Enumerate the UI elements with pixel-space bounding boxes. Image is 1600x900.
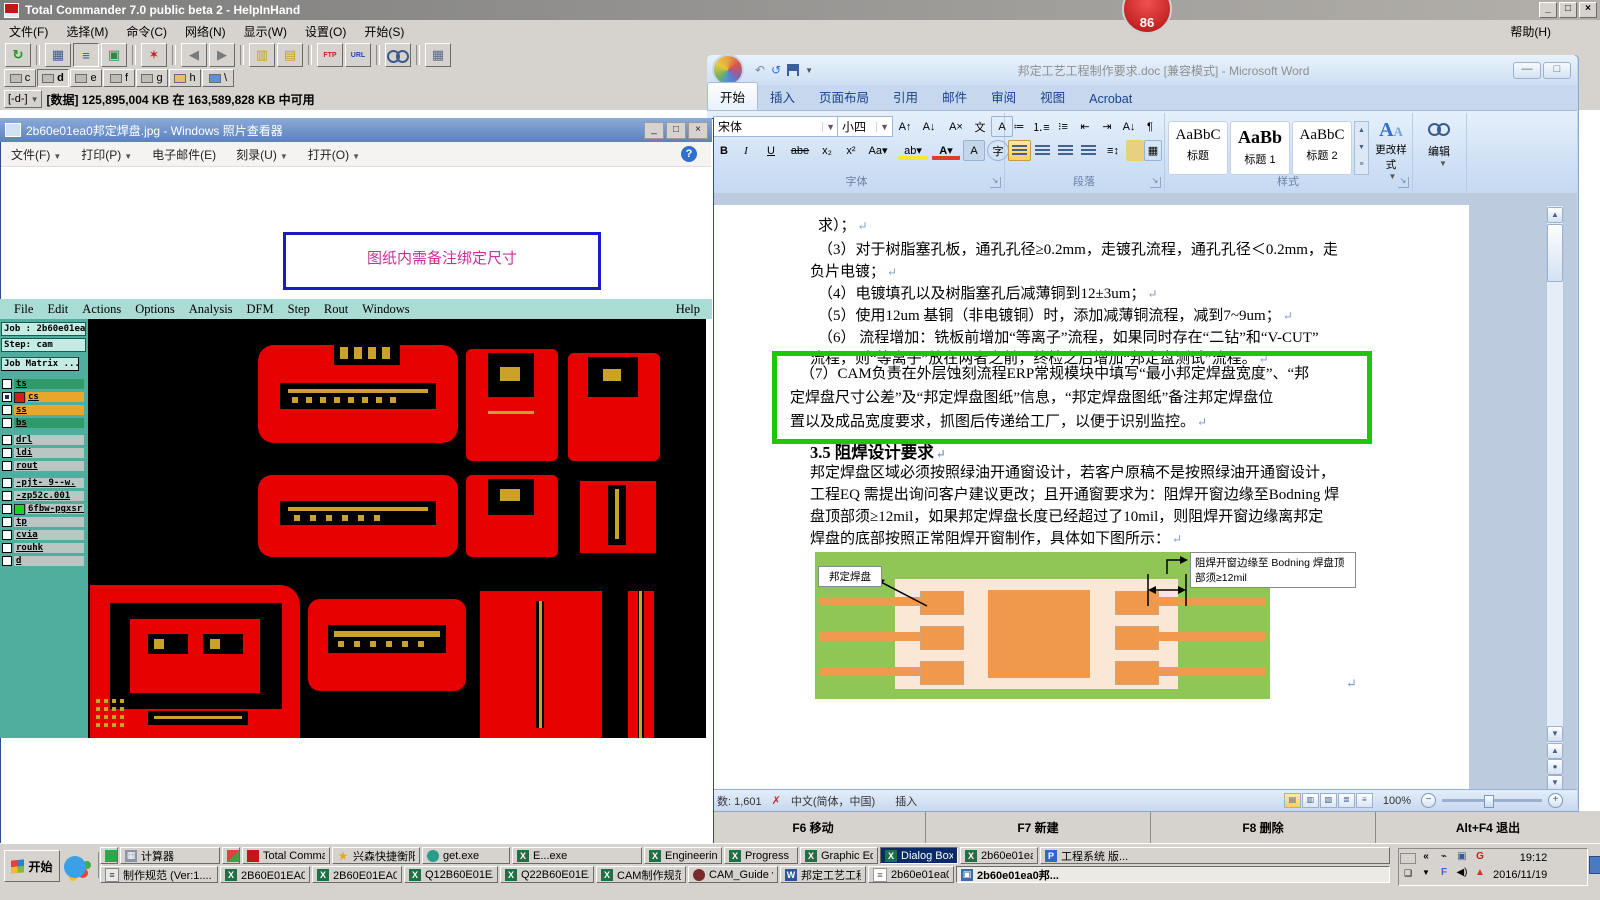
layer-row: tp <box>2 516 84 528</box>
tab-view[interactable]: 视图 <box>1028 83 1077 110</box>
photo-viewer-menubar: 文件(F)▼ 打印(P)▼ 电子邮件(E) 刻录(U)▼ 打开(O)▼ ? <box>1 142 711 167</box>
refresh-icon[interactable]: ↻ <box>5 43 31 67</box>
tab-review[interactable]: 审阅 <box>979 83 1028 110</box>
grow-font-button[interactable]: A↑ <box>893 116 917 137</box>
dropdown-arrow-icon[interactable]: ▼ <box>876 122 892 132</box>
tab-references[interactable]: 引用 <box>881 83 930 110</box>
scroll-up-button[interactable]: ▲ <box>1547 207 1563 223</box>
excel-icon: X <box>517 850 529 862</box>
borders-button[interactable]: ▦ <box>1144 140 1162 161</box>
calculator-icon[interactable]: ▦ <box>425 43 451 67</box>
layer-checkbox[interactable] <box>2 556 12 566</box>
word-maximize-button[interactable]: □ <box>1543 62 1571 79</box>
tab-page-layout[interactable]: 页面布局 <box>807 83 881 110</box>
superscript-button[interactable]: x² <box>839 140 863 161</box>
start-button[interactable]: 开始 <box>4 850 60 882</box>
paragraph-group-label: 段落 <box>1004 173 1164 189</box>
pv-menu-print[interactable]: 打印(P)▼ <box>71 143 142 166</box>
tc-close-button[interactable]: × <box>1579 2 1597 18</box>
multilevel-list-button[interactable]: ⁝≡ <box>1052 116 1074 137</box>
cam-step-label: Step: cam <box>1 338 86 352</box>
font-name-combo[interactable]: 宋体▼ <box>713 116 839 137</box>
cam-menu-help[interactable]: Help <box>676 302 700 317</box>
phonetic-guide-button[interactable]: 文 <box>969 116 991 137</box>
f8-delete-button[interactable]: F8 删除 <box>1150 811 1375 844</box>
word-title: 邦定工艺工程制作要求.doc [兼容模式] - Microsoft Word <box>816 62 1511 79</box>
excel-icon: X <box>225 869 237 881</box>
tc-minimize-button[interactable]: _ <box>1539 2 1557 18</box>
drive-icon <box>110 74 122 83</box>
pv-maximize-button[interactable]: □ <box>666 122 686 139</box>
pack-icon[interactable]: ▥ <box>249 43 275 67</box>
word-titlebar[interactable]: ↶ ↺ ▼ 邦定工艺工程制作要求.doc [兼容模式] - Microsoft … <box>707 55 1577 85</box>
qat-dropdown-icon[interactable]: ▼ <box>805 66 813 75</box>
excel-icon: X <box>805 850 817 862</box>
grid-view-icon[interactable]: ▦ <box>45 43 71 67</box>
editing-label[interactable]: 编辑 <box>1412 143 1466 159</box>
bullets-button[interactable]: ≔ <box>1008 116 1030 137</box>
drive-d-button[interactable]: d <box>37 69 69 87</box>
toolbar-separator <box>376 45 380 65</box>
doc-line: 邦定焊盘区域必须按照绿油开通窗设计，若客户原稿不是按照绿油开通窗设计， <box>810 461 1335 482</box>
align-right-icon <box>1058 145 1073 156</box>
total-commander-icon <box>247 850 259 862</box>
styles-gallery-scrollbar[interactable]: ▲▼≡ <box>1354 121 1369 175</box>
layer-name[interactable]: bs <box>14 418 84 428</box>
window-stack-icon[interactable]: ❑ <box>1400 866 1416 880</box>
excel-icon: X <box>317 869 329 881</box>
doc-line: 求）； <box>818 214 868 235</box>
excel-icon: X <box>505 869 517 881</box>
tray-date: 2016/11/19 <box>1493 867 1547 884</box>
layer-checkbox[interactable] <box>2 517 12 527</box>
pv-menu-open[interactable]: 打开(O)▼ <box>298 143 370 166</box>
browse-select-button[interactable]: ● <box>1547 759 1563 775</box>
style-name: 标题 1 <box>1231 151 1289 167</box>
photo-viewer-icon <box>5 123 21 137</box>
drive-icon <box>10 74 22 83</box>
drive-free-space: [数据] 125,895,004 KB 在 163,589,828 KB 中可用 <box>46 91 314 108</box>
italic-button[interactable]: I <box>735 140 757 161</box>
ftp-connect-icon[interactable]: FTP <box>317 43 343 67</box>
favorites-icon[interactable]: ✶ <box>141 43 167 67</box>
toolbar-separator <box>308 45 312 65</box>
layer-row: ss <box>2 404 84 416</box>
g-app-icon[interactable]: G <box>1472 850 1488 864</box>
doc-line: 盘顶部须≥12mil，如果邦定焊盘长度已经超过了10mil，则阻焊开窗边缘离邦定 <box>810 505 1323 526</box>
excel-icon: X <box>409 869 421 881</box>
fullscreen-view-button[interactable]: ▥ <box>1302 793 1319 808</box>
cam-guide-icon <box>693 869 705 881</box>
dropdown-arrow-icon: ▼ <box>280 152 288 161</box>
layer-name[interactable]: d <box>14 556 84 566</box>
shrink-font-button[interactable]: A↓ <box>917 116 941 137</box>
dropdown-arrow-icon[interactable]: ▼ <box>822 122 838 132</box>
taskbar-item[interactable]: CAM_Guide v2.63 <box>688 866 778 883</box>
layer-checkbox[interactable] <box>2 530 12 540</box>
tc-app-icon <box>4 3 19 18</box>
system-icon: P <box>1045 850 1057 862</box>
pv-menu-file[interactable]: 文件(F)▼ <box>1 143 71 166</box>
browse-prev-button[interactable]: ▲ <box>1547 743 1563 759</box>
outline-view-button[interactable]: ≣ <box>1338 793 1355 808</box>
excel-icon: X <box>601 869 613 881</box>
style-name: 标题 <box>1169 147 1227 163</box>
tab-acrobat[interactable]: Acrobat <box>1077 88 1144 110</box>
layer-name[interactable]: 6fbw-pgxsr. <box>26 504 84 514</box>
layer-name[interactable]: cvia <box>14 530 84 540</box>
taskbar-item[interactable]: XQ12B60E01EA0(... <box>404 866 498 883</box>
styles-group-label: 样式 <box>1164 173 1412 189</box>
zoom-slider-thumb[interactable] <box>1484 795 1494 808</box>
taskbar-item[interactable]: P工程系统 版... <box>1040 847 1390 864</box>
pv-help-button[interactable]: ? <box>681 146 697 162</box>
f6-move-button[interactable]: F6 移动 <box>700 811 925 844</box>
zoom-out-button[interactable]: − <box>1421 793 1436 808</box>
taskbar-item-active[interactable]: XDialog Box <box>880 847 958 864</box>
taskbar: 开始 ▦计算器 Total Commande... ★兴森快捷衡阳... get… <box>0 843 1600 900</box>
style-preview: AaBbC <box>1293 127 1351 144</box>
drive-icon <box>141 74 153 83</box>
cam-menu-step[interactable]: Step <box>288 302 310 317</box>
taskbar-icon-button[interactable] <box>222 847 240 864</box>
style-preview: AaBbC <box>1169 127 1227 144</box>
layer-row: d <box>2 555 84 567</box>
cam-menu-file[interactable]: File <box>14 302 33 317</box>
word-ribbon: 宋体▼ 小四▼ A↑ A↓ A× 文 A B I U abe x₂ x² Aa▾… <box>707 110 1577 195</box>
font-group-label: 字体 <box>709 173 1004 189</box>
thumbnails-icon[interactable]: ▣ <box>101 43 127 67</box>
drive-g-button[interactable]: g <box>136 69 168 87</box>
keyboard-icon[interactable] <box>1400 853 1416 864</box>
document-icon: ≡ <box>105 868 119 882</box>
layer-checkbox[interactable] <box>2 392 12 402</box>
pv-menu-burn[interactable]: 刻录(U)▼ <box>226 143 298 166</box>
volume-icon[interactable]: ◀) <box>1454 866 1470 880</box>
dropdown-arrow-icon: ▼ <box>352 152 360 161</box>
notepad-icon: ≡ <box>873 868 887 882</box>
toolbar-separator <box>36 45 40 65</box>
taskbar-item[interactable]: ★兴森快捷衡阳... <box>332 847 420 864</box>
shading-button[interactable] <box>1126 140 1144 161</box>
change-styles-label: 更改样式 <box>1371 142 1411 172</box>
callout-bond-pad: 邦定焊盘 <box>818 566 882 587</box>
photo-viewer-title: 2b60e01ea0邦定焊盘.jpg - Windows 照片查看器 <box>26 122 283 139</box>
cam-menu-dfm[interactable]: DFM <box>247 302 274 317</box>
taskbar-item[interactable]: X2B60E01EA0-预... <box>312 866 402 883</box>
layer-name[interactable]: tp <box>14 517 84 527</box>
tc-menu-settings[interactable]: 设置(O) <box>296 21 355 42</box>
redo-icon[interactable]: ↺ <box>771 63 781 77</box>
layer-checkbox[interactable] <box>2 379 12 389</box>
taskbar-item-active[interactable]: ▣2b60e01ea0邦... <box>956 866 1390 883</box>
font-color-button[interactable]: A▾ <box>931 140 961 161</box>
ribbon-group-font: 宋体▼ 小四▼ A↑ A↓ A× 文 A B I U abe x₂ x² Aa▾… <box>709 113 1005 191</box>
callout-mask-rule: 阻焊开窗边缘至 Bodning 焊盘顶 部须≥12mil <box>1190 552 1356 588</box>
taskbar-item[interactable]: X2B60E01EA0制作... <box>220 866 310 883</box>
windows-flag-icon <box>11 859 24 873</box>
doc-line: 负片电镀； <box>810 260 897 281</box>
justify-icon <box>1081 145 1096 156</box>
sort-button[interactable]: A↓ <box>1118 116 1140 137</box>
tc-titlebar[interactable]: Total Commander 7.0 public beta 2 - Help… <box>0 0 1600 20</box>
line-spacing-button[interactable]: ≡↕ <box>1100 140 1126 161</box>
numbering-button[interactable]: ⒈≡ <box>1030 116 1052 137</box>
font-dialog-launcher[interactable]: ↘ <box>990 177 1001 188</box>
drive-icon <box>174 74 186 83</box>
show-marks-button[interactable]: ¶ <box>1140 116 1160 137</box>
tc-restore-button[interactable]: □ <box>1559 2 1577 18</box>
cam-canvas[interactable] <box>88 319 706 738</box>
taskbar-item[interactable]: ≡2b60e01ea0.txt -... <box>868 866 954 883</box>
f7-new-button[interactable]: F7 新建 <box>925 811 1150 844</box>
taskbar-item[interactable]: XEngineering Tool... <box>644 847 722 864</box>
tc-menu-help[interactable]: 帮助(H) <box>1501 21 1560 42</box>
desktop: Total Commander 7.0 public beta 2 - Help… <box>0 0 1600 900</box>
draft-view-button[interactable]: ≡ <box>1356 793 1373 808</box>
layer-color-swatch[interactable] <box>14 504 25 515</box>
altf4-exit-button[interactable]: Alt+F4 退出 <box>1375 811 1600 844</box>
toolbar-separator <box>240 45 244 65</box>
word-icon: W <box>785 869 797 881</box>
taskbar-item[interactable]: X2b60e01ea0 - m... <box>960 847 1038 864</box>
undo-icon[interactable]: ↶ <box>755 63 765 77</box>
decrease-indent-button[interactable]: ⇤ <box>1074 116 1096 137</box>
taskbar-item[interactable]: get.exe <box>422 847 510 864</box>
cam-menu-actions[interactable]: Actions <box>82 302 121 317</box>
pv-close-button[interactable]: × <box>688 122 708 139</box>
flash-tool-icon[interactable]: F <box>1436 866 1452 880</box>
cam-menu-windows[interactable]: Windows <box>362 302 409 317</box>
find-icon[interactable] <box>1428 123 1450 133</box>
align-left-button[interactable] <box>1008 140 1031 161</box>
clock-icon <box>427 850 439 862</box>
word-ribbon-tabs: 开始 插入 页面布局 引用 邮件 审阅 视图 Acrobat <box>707 85 1577 110</box>
align-right-button[interactable] <box>1054 140 1077 161</box>
taskbar-item[interactable]: XQ22B60E01EA0(... <box>500 866 594 883</box>
green-highlight-box <box>772 351 1372 444</box>
callout-line2: 部须≥12mil <box>1195 570 1351 585</box>
font-size-combo[interactable]: 小四▼ <box>837 116 893 137</box>
show-desktop-icon[interactable] <box>1589 856 1600 874</box>
tc-menu-network[interactable]: 网络(N) <box>176 21 235 42</box>
pv-minimize-button[interactable]: _ <box>644 122 664 139</box>
bold-button[interactable]: B <box>713 140 735 161</box>
drive-h-button[interactable]: h <box>169 69 201 87</box>
style-preview: AaBb <box>1231 127 1289 148</box>
clear-formatting-button[interactable]: A× <box>943 116 969 137</box>
character-shading-button[interactable]: A <box>963 140 985 161</box>
doc-line: （5）使用12um 基铜（非电镀铜）时，添加减薄铜流程，减到7~9um； <box>818 304 1293 325</box>
align-center-icon <box>1035 145 1050 156</box>
tc-menu-start[interactable]: 开始(S) <box>355 21 413 42</box>
strikethrough-button[interactable]: abe <box>785 140 815 161</box>
star-icon: ★ <box>337 850 349 862</box>
drive-c-button[interactable]: c <box>4 69 36 87</box>
search-icon[interactable] <box>385 43 411 67</box>
styles-dialog-launcher[interactable]: ↘ <box>1398 177 1409 188</box>
style-card-heading2[interactable]: AaBbC 标题 2 <box>1292 121 1352 175</box>
zoom-level[interactable]: 100% <box>1383 795 1411 807</box>
excel-icon: X <box>729 850 741 862</box>
collapse-tray-icon[interactable]: ▼ <box>1418 866 1434 880</box>
language-status[interactable]: 中文(简体，中国) <box>791 793 875 809</box>
layer-name[interactable]: -pjt- 9--w. <box>14 478 84 488</box>
cam-menu-edit[interactable]: Edit <box>47 302 68 317</box>
cam-menubar: File Edit Actions Options Analysis DFM S… <box>0 299 712 319</box>
cam-menu-options[interactable]: Options <box>135 302 175 317</box>
job-matrix-button[interactable]: Job Matrix ... <box>1 357 79 371</box>
layer-name[interactable]: rouhk <box>14 543 84 553</box>
print-layout-view-button[interactable]: ▤ <box>1284 793 1301 808</box>
layer-row: -pjt- 9--w. <box>2 477 84 489</box>
calculator-icon: ▦ <box>125 850 137 862</box>
scroll-down-button[interactable]: ▼ <box>1547 726 1563 742</box>
layer-checkbox[interactable] <box>2 491 12 501</box>
network-icon[interactable]: ▣ <box>1454 850 1470 864</box>
dropdown-arrow-icon: ▼ <box>1439 159 1447 168</box>
callout-line1: 阻焊开窗边缘至 Bodning 焊盘顶 <box>1195 555 1351 570</box>
layer-row: bs <box>2 417 84 429</box>
change-styles-button[interactable]: AA 更改样式 ▼ <box>1371 119 1411 179</box>
paragraph-dialog-launcher[interactable]: ↘ <box>1150 177 1161 188</box>
zoom-in-button[interactable]: + <box>1548 793 1563 808</box>
system-tray: ❑ « ▼ ⌁ F ▣ ◀) G ▲ 19:12 2016/11/19 <box>1398 848 1588 886</box>
taskbar-item[interactable]: ▦计算器 <box>120 847 220 864</box>
web-view-button[interactable]: ▧ <box>1320 793 1337 808</box>
layer-checkbox[interactable] <box>2 448 12 458</box>
layer-color-swatch[interactable] <box>14 392 25 403</box>
taskbar-item[interactable]: ≡制作规范 (Ver:1.... <box>100 866 218 883</box>
style-card-heading1[interactable]: AaBb 标题 1 <box>1230 121 1290 175</box>
word-window-controls: — □ <box>1511 62 1571 79</box>
quick-access-toolbar: ↶ ↺ ▼ <box>752 63 816 77</box>
layer-checkbox[interactable] <box>2 418 12 428</box>
proofing-icon[interactable]: ✗ <box>772 794 781 807</box>
tray-clock[interactable]: 19:12 2016/11/19 <box>1493 849 1547 885</box>
layer-checkbox[interactable] <box>2 478 12 488</box>
taskbar-item[interactable]: XProgress <box>724 847 798 864</box>
zoom-slider[interactable] <box>1442 799 1542 802</box>
word-count[interactable]: 数: 1,601 <box>717 793 762 809</box>
tc-menu-file[interactable]: 文件(F) <box>0 21 57 42</box>
taskbar-item[interactable]: XGraphic Editor 9.... <box>800 847 878 864</box>
doc-line: （4）电镀填孔以及树脂塞孔后减薄铜到12±3um； <box>818 282 1157 303</box>
unpack-icon[interactable]: ▤ <box>277 43 303 67</box>
layer-row: rout <box>2 460 84 472</box>
align-center-button[interactable] <box>1031 140 1054 161</box>
excel-icon: X <box>885 850 897 862</box>
photo-viewer-titlebar[interactable]: 2b60e01ea0邦定焊盘.jpg - Windows 照片查看器 _ □ × <box>0 118 712 142</box>
taskbar-item[interactable]: XCAM制作规范.xl... <box>596 866 686 883</box>
taskbar-item[interactable]: XE...exe <box>512 847 642 864</box>
layer-checkbox[interactable] <box>2 543 12 553</box>
toolbar-separator <box>172 45 176 65</box>
tab-mailings[interactable]: 邮件 <box>930 83 979 110</box>
change-styles-icon: AA <box>1371 119 1411 142</box>
toolbar-separator <box>132 45 136 65</box>
tab-home[interactable]: 开始 <box>707 82 758 110</box>
subscript-button[interactable]: x₂ <box>815 140 839 161</box>
justify-button[interactable] <box>1077 140 1100 161</box>
quick-launch-icon[interactable] <box>64 856 86 878</box>
layer-name[interactable]: -zp52c.001 <box>14 491 84 501</box>
layer-name[interactable]: cs <box>26 392 84 402</box>
photo-viewer-icon: ▣ <box>961 869 973 881</box>
taskbar-row2: ≡制作规范 (Ver:1.... X2B60E01EA0制作... X2B60E… <box>100 866 1392 883</box>
cam-menu-rout[interactable]: Rout <box>324 302 348 317</box>
cam-menu-analysis[interactable]: Analysis <box>189 302 233 317</box>
layer-checkbox[interactable] <box>2 504 12 514</box>
drive-selector[interactable]: [-d-]▼ <box>4 90 42 108</box>
underline-button[interactable]: U <box>757 140 785 161</box>
tc-menu-view[interactable]: 显示(W) <box>235 21 296 42</box>
tc-menubar: 文件(F) 选择(M) 命令(C) 网络(N) 显示(W) 设置(O) 开始(S… <box>0 20 1600 42</box>
increase-indent-button[interactable]: ⇥ <box>1096 116 1118 137</box>
tray-time: 19:12 <box>1493 850 1547 867</box>
taskbar-icon-button[interactable] <box>100 847 118 864</box>
layer-name[interactable]: ss <box>14 405 84 415</box>
doc-line: （3）对于树脂塞孔板，通孔孔径≥0.2mm，走镀孔流程，通孔孔径＜0.2mm，走 <box>818 238 1338 259</box>
forward-icon[interactable]: ▶ <box>209 43 235 67</box>
layer-checkbox[interactable] <box>2 461 12 471</box>
highlight-color-button[interactable]: ab▾ <box>897 140 929 161</box>
layer-row: cvia <box>2 529 84 541</box>
layer-row: cs <box>2 391 84 403</box>
expand-tray-icon[interactable]: « <box>1418 850 1434 864</box>
back-icon[interactable]: ◀ <box>181 43 207 67</box>
word-vscrollbar[interactable]: ▲ ▼ ▲ ● ▼ <box>1546 205 1564 792</box>
word-statusbar: 数: 1,601 ✗ 中文(简体，中国) 插入 ▤ ▥ ▧ ≣ ≡ 100% −… <box>707 789 1577 811</box>
tc-function-key-bar: F6 移动 F7 新建 F8 删除 Alt+F4 退出 <box>700 810 1600 844</box>
solder-mask-diagram: 邦定焊盘 阻焊开窗边缘至 Bodning 焊盘顶 部须≥12mil <box>815 544 1360 700</box>
pv-menu-email[interactable]: 电子邮件(E) <box>142 143 226 166</box>
insert-mode[interactable]: 插入 <box>895 793 917 809</box>
word-minimize-button[interactable]: — <box>1513 62 1541 79</box>
scroll-thumb[interactable] <box>1547 224 1563 282</box>
tree-view-icon[interactable]: ≡ <box>73 43 99 67</box>
ftp-url-icon[interactable]: URL <box>345 43 371 67</box>
download-tool-icon[interactable]: ▲ <box>1472 866 1488 880</box>
drive-f-button[interactable]: f <box>103 69 135 87</box>
layer-name[interactable]: ldi <box>14 448 84 458</box>
cam-job-label: Job : 2b60e01ea0 <box>1 322 86 336</box>
layer-name[interactable]: rout <box>14 461 84 471</box>
drive-icon <box>75 74 87 83</box>
change-case-button[interactable]: Aa▾ <box>863 140 893 161</box>
drive-e-button[interactable]: e <box>70 69 102 87</box>
tc-menu-select[interactable]: 选择(M) <box>57 21 117 42</box>
dropdown-arrow-icon: ▼ <box>53 152 61 161</box>
layer-checkbox[interactable] <box>2 405 12 415</box>
style-card-title[interactable]: AaBbC 标题 <box>1168 121 1228 175</box>
taskbar-item[interactable]: Total Commande... <box>242 847 330 864</box>
layer-name[interactable]: ts <box>14 379 84 389</box>
drive-net-button[interactable]: \ <box>202 69 234 87</box>
layer-name[interactable]: drl <box>14 435 84 445</box>
dropdown-arrow-icon: ▼ <box>124 152 132 161</box>
drive-icon <box>42 74 54 83</box>
doc-line: 工程EQ 需提出询问客户建议更改；且开通窗要求为：阻焊开窗边缘至Bodning … <box>810 483 1339 504</box>
style-name: 标题 2 <box>1293 147 1351 163</box>
tc-menu-command[interactable]: 命令(C) <box>117 21 176 42</box>
network-icon <box>209 74 221 83</box>
taskbar-item[interactable]: W邦定工艺工程制... <box>780 866 866 883</box>
save-icon[interactable] <box>787 64 799 76</box>
tab-insert[interactable]: 插入 <box>758 83 807 110</box>
power-plug-icon[interactable]: ⌁ <box>1436 850 1452 864</box>
layer-chec kbox[interactable] <box>2 435 12 445</box>
